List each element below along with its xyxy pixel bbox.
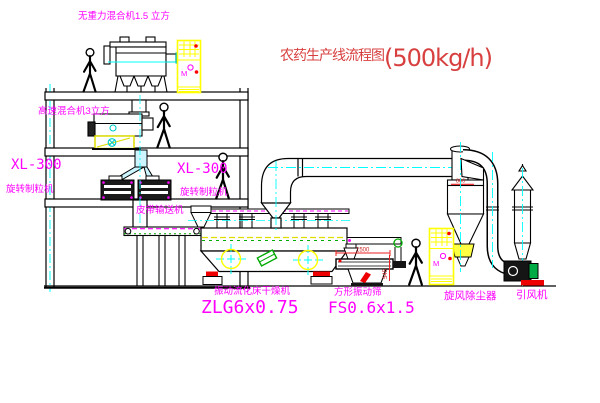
person-icon [157,103,169,147]
title-text: 农药生产线流程图 [280,47,384,63]
control-cabinet-2: M [430,229,454,285]
person-icon [409,239,422,284]
indicator-lamp [447,232,451,236]
label-sieve-name: 方形振动筛 [334,288,382,298]
fan-base [521,280,544,286]
dust-bin [452,244,474,257]
label-gravity-mixer: 无重力混合机1.5 立方 [78,12,170,22]
ground-line [44,286,556,288]
dryer-discharge-pipe [347,238,401,245]
person-icon [84,49,96,92]
indicator-lamp [194,44,198,48]
title-capacity: (500kg/h) [384,44,492,72]
label-dryer-model: ZLG6x0.75 [201,299,299,317]
label-dryer-name: 振动流化床干燥机 [214,287,290,297]
indicator-lamp [448,257,452,261]
sieve-motor [393,261,406,268]
label-granulator-left-model: XL-300 [11,158,62,172]
fan-motor [529,264,538,279]
cyclone-separator: 800 [448,142,521,272]
cabinet-marking: M [181,69,187,78]
dryer-foot-left [206,272,218,277]
granulator-right [138,176,171,200]
cabinet-marking: M [433,259,439,268]
label-granulator-right-model: XL-300 [177,162,228,176]
label-high-speed-mixer: 高速混合机3立方 [38,107,110,117]
belt-conveyor [124,227,201,286]
cad-canvas: M [0,0,600,403]
diagram-title: 农药生产线流程图(500kg/h) [280,44,492,72]
label-granulator-left-name: 旋转制粒机 [6,185,54,195]
label-cyclone: 旋风除尘器 [444,291,497,302]
control-cabinet-1: M [178,41,201,93]
sieve-height-dimension: 545 [383,268,389,279]
granulator-left [101,176,134,200]
conveyor-legs [137,236,185,286]
label-fan: 引风机 [516,290,548,301]
floor-slab-1 [45,92,248,100]
label-granulator-right-name: 旋转制粒机 [180,188,228,198]
label-sieve-model: FS0.6x1.5 [328,300,415,316]
gravity-mixer [104,37,180,92]
dryer-foot-right [313,272,330,277]
sieve-length-dimension: 1500 [356,248,370,254]
induced-draft-fan [504,261,544,286]
indicator-lamp [195,70,199,74]
label-belt-conveyor: 皮带输送机 [136,206,184,216]
